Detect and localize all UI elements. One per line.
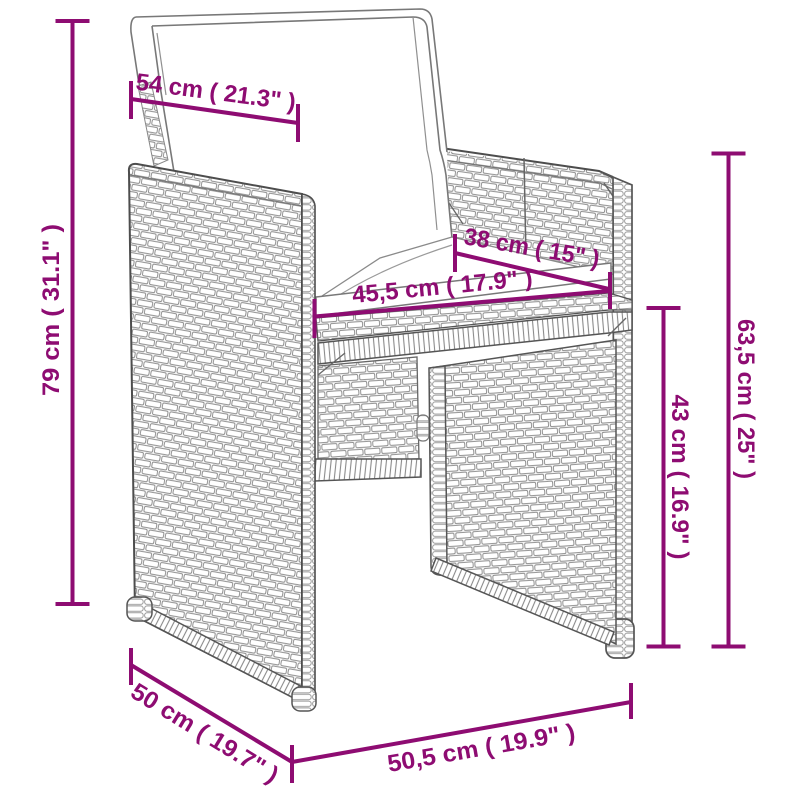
svg-text:43 cm ( 16.9" ): 43 cm ( 16.9" ) [666, 395, 693, 560]
svg-text:63,5 cm ( 25" ): 63,5 cm ( 25" ) [732, 319, 759, 479]
svg-text:79 cm ( 31.1" ): 79 cm ( 31.1" ) [38, 224, 65, 396]
